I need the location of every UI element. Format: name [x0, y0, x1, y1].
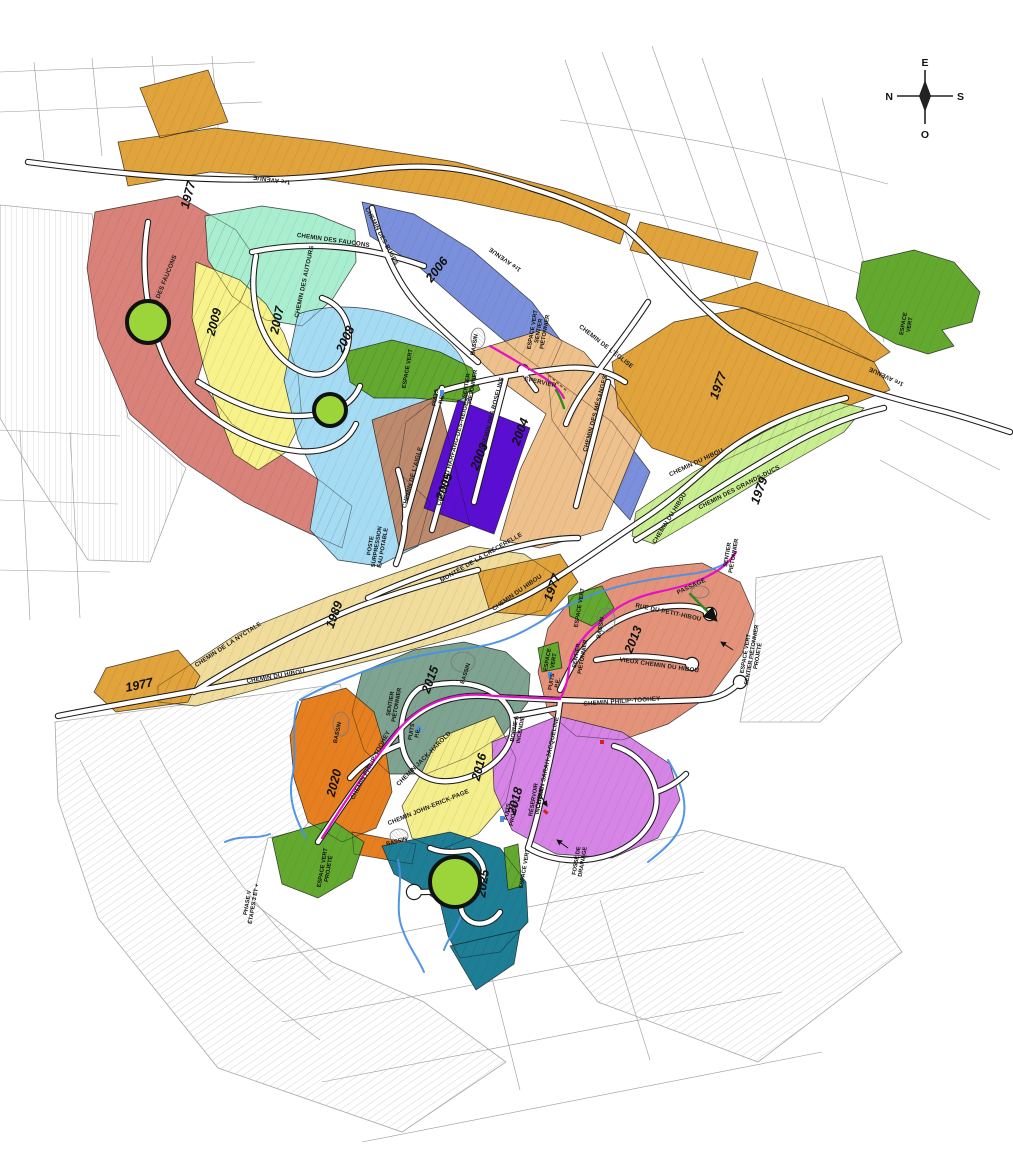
fire-hydrant-mark [600, 740, 604, 744]
bassin-symbol [451, 652, 475, 672]
development-phase-map: 1re AVENUE1re AVENUE1re AVENUECHEMIN DES… [0, 0, 1013, 1166]
compass-right-label: S [957, 91, 964, 103]
roundabout-marker [314, 394, 346, 426]
roundabout-marker [430, 857, 480, 907]
compass-top-label: E [921, 57, 928, 69]
roundabout-marker [127, 301, 169, 343]
compass-left-label: N [885, 91, 893, 103]
compass-bottom-label: O [921, 129, 929, 141]
development-phase-map-page: 1re AVENUE1re AVENUE1re AVENUECHEMIN DES… [0, 0, 1013, 1166]
